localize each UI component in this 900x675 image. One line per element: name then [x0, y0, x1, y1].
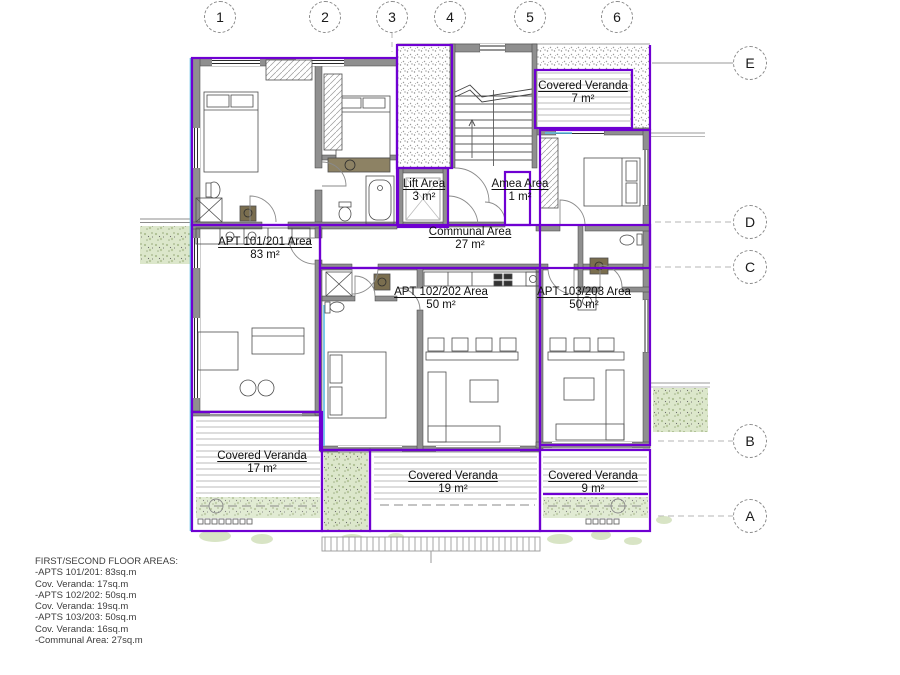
- room-name: APT 102/202 Area: [394, 286, 488, 299]
- room-label-communal: Communal Area 27 m²: [429, 226, 511, 252]
- summary-line: -APTS 102/202: 50sq.m: [35, 590, 178, 601]
- room-area: 9 m²: [548, 483, 638, 496]
- grid-bubble-col-3: 3: [376, 1, 408, 33]
- grid-bubble-col-2: 2: [309, 1, 341, 33]
- grid-bubble-row-D: D: [733, 205, 767, 239]
- room-label-amea: Amea Area 1 m²: [492, 178, 549, 204]
- grid-label: E: [745, 55, 754, 71]
- grid-label: D: [745, 214, 755, 230]
- grid-label: A: [745, 508, 754, 524]
- room-area: 19 m²: [408, 483, 498, 496]
- room-area: 1 m²: [492, 191, 549, 204]
- room-label-veranda-7: Covered Veranda 7 m²: [538, 80, 628, 106]
- room-name: Covered Veranda: [548, 470, 638, 483]
- grid-bubble-row-E: E: [733, 46, 767, 80]
- summary-line: -APTS 101/201: 83sq.m: [35, 567, 178, 578]
- room-name: Covered Veranda: [217, 450, 307, 463]
- room-name: Covered Veranda: [538, 80, 628, 93]
- summary-line: Cov. Veranda: 17sq.m: [35, 579, 178, 590]
- summary-line: Cov. Veranda: 16sq.m: [35, 624, 178, 635]
- room-name: APT 101/201 Area: [218, 236, 312, 249]
- room-name: Amea Area: [492, 178, 549, 191]
- room-label-apt-103-203: APT 103/203 Area 50 m²: [537, 286, 631, 312]
- grid-label: B: [745, 433, 754, 449]
- grid-label: 6: [613, 9, 621, 25]
- room-name: APT 103/203 Area: [537, 286, 631, 299]
- grid-label: 5: [526, 9, 534, 25]
- room-label-veranda-19: Covered Veranda 19 m²: [408, 470, 498, 496]
- grid-bubble-row-B: B: [733, 424, 767, 458]
- grid-bubble-col-5: 5: [514, 1, 546, 33]
- room-name: Covered Veranda: [408, 470, 498, 483]
- room-name: Communal Area: [429, 226, 511, 239]
- room-label-lift: Lift Area 3 m²: [403, 178, 445, 204]
- room-label-apt-102-202: APT 102/202 Area 50 m²: [394, 286, 488, 312]
- room-area: 3 m²: [403, 191, 445, 204]
- grid-bubble-row-C: C: [733, 250, 767, 284]
- room-area: 27 m²: [429, 239, 511, 252]
- room-label-veranda-17: Covered Veranda 17 m²: [217, 450, 307, 476]
- grid-label: 3: [388, 9, 396, 25]
- room-area: 17 m²: [217, 463, 307, 476]
- grid-bubble-col-1: 1: [204, 1, 236, 33]
- grid-bubble-col-4: 4: [434, 1, 466, 33]
- room-area: 50 m²: [394, 299, 488, 312]
- room-area: 7 m²: [538, 93, 628, 106]
- room-label-apt-101-201: APT 101/201 Area 83 m²: [218, 236, 312, 262]
- summary-title: FIRST/SECOND FLOOR AREAS:: [35, 556, 178, 567]
- grid-bubble-col-6: 6: [601, 1, 633, 33]
- room-name: Lift Area: [403, 178, 445, 191]
- room-area: 83 m²: [218, 249, 312, 262]
- pergola-tick-band: [322, 537, 540, 563]
- room-label-veranda-9: Covered Veranda 9 m²: [548, 470, 638, 496]
- grid-label: 2: [321, 9, 329, 25]
- staircase: [455, 85, 532, 166]
- grid-bubble-row-A: A: [733, 499, 767, 533]
- floor-plan-page: 1 2 3 4 5 6 E D C B A APT 101/201 Area 8…: [0, 0, 900, 675]
- grid-label: C: [745, 259, 755, 275]
- summary-line: Cov. Veranda: 19sq.m: [35, 601, 178, 612]
- summary-line: -APTS 103/203: 50sq.m: [35, 612, 178, 623]
- grid-label: 1: [216, 9, 224, 25]
- floor-areas-summary: FIRST/SECOND FLOOR AREAS: -APTS 101/201:…: [35, 556, 178, 646]
- summary-line: -Communal Area: 27sq.m: [35, 635, 178, 646]
- grid-label: 4: [446, 9, 454, 25]
- room-area: 50 m²: [537, 299, 631, 312]
